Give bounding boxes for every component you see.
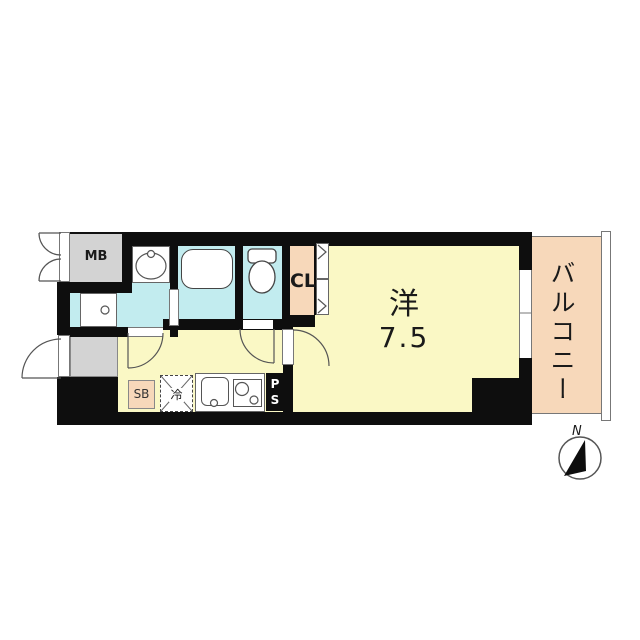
compass-icon: N (559, 424, 601, 479)
entrance-door-swing-icon (22, 339, 61, 378)
meter-box-doors-icon (39, 233, 61, 281)
balcony-rail (601, 231, 611, 421)
wall-room-left-lower (283, 365, 293, 412)
balcony-label: バルコニー (549, 247, 579, 417)
toilet-doorway (243, 320, 273, 329)
wall-meter-box-right (122, 232, 132, 293)
shoe-box-label: SB (128, 387, 155, 401)
wall-room-left-upper (282, 315, 293, 329)
vanity-counter (132, 246, 170, 283)
stove (233, 379, 262, 407)
wall-right-bottom (519, 358, 532, 420)
meter-box-label: MB (70, 249, 122, 264)
room-size-label: 7.5 (340, 322, 468, 354)
wall-washroom-bottom (62, 327, 128, 337)
room-label: 洋 7.5 (340, 288, 468, 354)
washing-machine-pan (80, 293, 117, 327)
compass-north-label: N (572, 424, 582, 439)
entrance-doorway (58, 335, 70, 377)
balcony-window (519, 270, 532, 358)
washroom-doorway (128, 327, 163, 337)
room-doorway (282, 329, 294, 365)
wall-below-meter-box (57, 282, 132, 293)
bathroom-door (169, 289, 179, 326)
kitchen-sink (201, 377, 229, 406)
wall-bottom (57, 412, 532, 425)
entrance-floor (70, 335, 118, 377)
bathtub (181, 249, 233, 289)
refrigerator-kanji: 冷 (169, 388, 183, 402)
pipe-space-s: S (266, 392, 284, 408)
refrigerator-label: 冷 (160, 386, 193, 403)
floor-plan: N MB CL 洋 7.5 バルコニー SB 冷 P S (0, 0, 640, 640)
wall-toilet-left (235, 246, 243, 328)
pipe-space-label: P S (266, 376, 284, 408)
closet-label: CL (287, 270, 319, 292)
room-corner-pillar (472, 378, 519, 412)
meter-box-opening (59, 232, 70, 282)
wall-right-top (519, 232, 532, 270)
room-type-label: 洋 (340, 288, 468, 322)
pipe-space-p: P (266, 376, 284, 392)
